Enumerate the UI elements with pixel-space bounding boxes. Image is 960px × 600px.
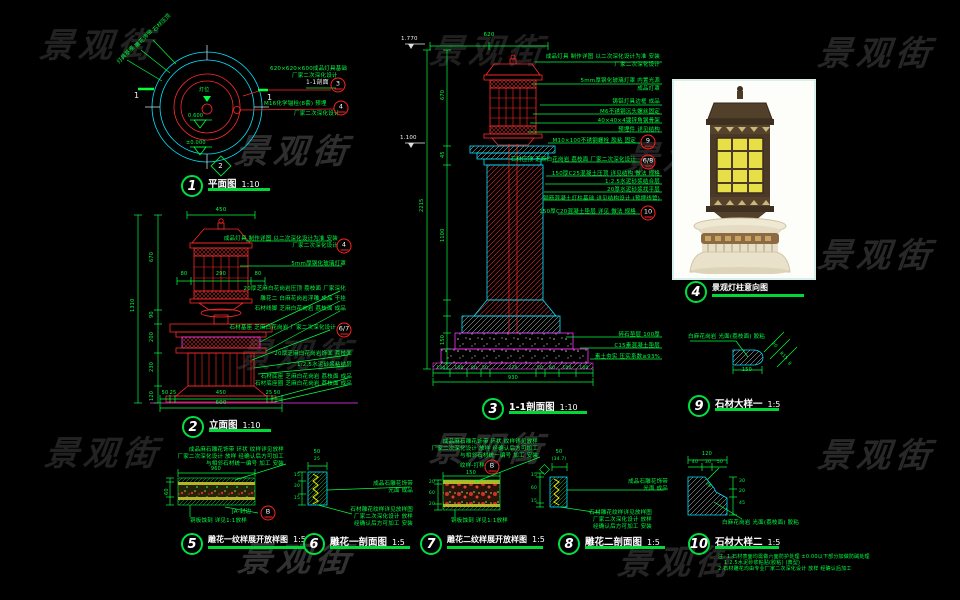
annotation-text: 光面 成品 bbox=[388, 488, 413, 494]
lamp-reference-photo bbox=[672, 79, 816, 280]
lamp-photo-render bbox=[674, 81, 810, 274]
annotation-text: 150 bbox=[466, 471, 476, 477]
annotation-text: 600 bbox=[215, 400, 226, 406]
annotation-text: 15 bbox=[531, 474, 537, 479]
annotation-text: 成品麻石雕花饰带 环状 纹样详见放样 bbox=[443, 439, 538, 445]
annotation-text: 290 bbox=[216, 272, 226, 278]
annotation-text: 灯位 bbox=[199, 88, 209, 94]
view-title-6: 6雕花一剖面图1:5 bbox=[303, 533, 325, 555]
annotation-text: 40 bbox=[692, 461, 698, 466]
view-title-label: 景观灯柱意向图 bbox=[712, 282, 768, 293]
annotation-text: 930 bbox=[508, 376, 518, 382]
title-underline bbox=[330, 546, 410, 549]
annotation-text: 120 bbox=[702, 452, 712, 458]
view-number-bubble: 1 bbox=[181, 175, 203, 197]
annotation-text: 60 bbox=[165, 488, 171, 495]
annotation-text: 50 bbox=[717, 461, 723, 466]
annotation-text: 45 bbox=[441, 151, 447, 158]
annotation-text: 石材压顶 芝麻白花岗岩 荔枝面 厂家二次深化设计 bbox=[510, 157, 636, 163]
annotation-text: JA-封边 bbox=[232, 509, 251, 515]
annotation-text: 光面 成品 bbox=[643, 486, 668, 492]
annotation-text: ±0.000 bbox=[186, 141, 206, 147]
annotation-text: 厂家二次深化设计 放样 经确认后方可加工 bbox=[178, 454, 285, 460]
annotation-text: 50 bbox=[556, 450, 563, 456]
annotation-text: 100 bbox=[579, 367, 588, 372]
annotation-text: 1.770 bbox=[401, 36, 418, 42]
annotation-text: 15 bbox=[294, 497, 300, 502]
annotation-text: 960 bbox=[211, 467, 221, 473]
view-title-8: 8雕花二剖面图1:5 bbox=[558, 533, 580, 555]
cad-linework bbox=[0, 0, 960, 600]
annotation-text: 成品麻石雕花饰带 环状 纹样详见放样 bbox=[189, 447, 284, 453]
annotation-text: 成品石雕花饰带 bbox=[628, 479, 668, 485]
annotation-text: 厂家二次深化设计 bbox=[294, 111, 340, 117]
annotation-text: 石材雕花纹样详见放样图 bbox=[350, 507, 413, 513]
annotation-text: 石材底座 芝麻白花岗岩 荔枝面 成品 bbox=[261, 374, 352, 380]
annotation-text: 20厚芝麻白花岗岩压顶 荔枝面 厂家深化 bbox=[244, 286, 347, 292]
annotation-text: 成品灯罩 bbox=[637, 86, 660, 92]
annotation-text: 石材基座 芝麻白花岗岩 厂家二次深化设计 bbox=[230, 325, 337, 331]
view-title-5: 5雕花一纹样展开放样图1:5 bbox=[181, 533, 203, 555]
detail9-stone bbox=[733, 350, 763, 365]
annotation-text: 100 bbox=[562, 367, 571, 372]
annotation-text: 60 bbox=[531, 487, 537, 492]
view-title-1: 1平面图1:10 bbox=[181, 175, 203, 197]
title-underline bbox=[447, 546, 543, 549]
annotation-text: 厂家二次深化设计 放样 经确认后方可加工 bbox=[432, 446, 539, 452]
view-title-7: 7雕花二纹样展开放样图1:5 bbox=[420, 533, 442, 555]
title-underline bbox=[509, 411, 587, 414]
annotation-text: 620 bbox=[483, 32, 494, 38]
callout-bubble: 6/7 bbox=[337, 323, 352, 338]
annotation-text: 80 bbox=[549, 367, 555, 372]
annotation-text: 200 bbox=[150, 332, 156, 342]
annotation-text: 铜板蚀刻 详见1:1放样 bbox=[451, 518, 508, 524]
annotation-text: 90 bbox=[150, 311, 156, 318]
annotation-text: 2215 bbox=[420, 198, 426, 212]
annotation-text: 150 bbox=[742, 368, 752, 374]
annotation-text: 50 bbox=[162, 391, 169, 397]
view-number-bubble: 9 bbox=[688, 395, 710, 417]
callout-bubble: B bbox=[485, 460, 500, 475]
annotation-text: 30 bbox=[705, 461, 711, 466]
view-title-label: 雕花一纹样展开放样图1:5 bbox=[208, 534, 306, 545]
annotation-text: 预埋件 详见结构 bbox=[618, 127, 660, 133]
annotation-text: M16化学锚栓(8套) 预埋 bbox=[264, 101, 327, 107]
annotation-text: 铸铝灯具边框 成品 bbox=[612, 99, 660, 105]
annotation-text: 1 bbox=[134, 92, 139, 101]
annotation-text: 230 bbox=[150, 362, 156, 372]
annotation-text: 25 bbox=[314, 458, 320, 463]
annotation-text: 铜板蚀刻 详见1:1放样 bbox=[190, 518, 247, 524]
annotation-text: 石材线脚 芝麻白花岗岩 荔枝面 成品 bbox=[255, 306, 346, 312]
annotation-text: 80 bbox=[255, 272, 262, 278]
view-number-bubble: 10 bbox=[688, 533, 710, 555]
annotation-text: C15素混凝土垫层 bbox=[614, 343, 660, 349]
title-underline bbox=[585, 546, 665, 549]
annotation-text: 1 bbox=[267, 94, 272, 103]
annotation-text: 1-1剖面 bbox=[306, 80, 329, 87]
annotation-text: 25 bbox=[266, 391, 273, 397]
annotation-text: 150厚C20混凝土垫层 详见 做法 规格 bbox=[539, 209, 636, 215]
annotation-text: 20 bbox=[739, 490, 745, 495]
annotation-text: 纹样-打样 bbox=[460, 463, 485, 469]
annotation-text: 80 bbox=[471, 367, 477, 372]
annotation-text: 150 bbox=[441, 335, 447, 345]
title-underline bbox=[208, 188, 270, 191]
annotation-text: 石材底座圈 芝麻白花岗岩 荔枝面 成品 bbox=[255, 381, 352, 387]
annotation-text: 经确认后方可加工 安装 bbox=[354, 521, 413, 527]
view-number-bubble: 2 bbox=[182, 416, 204, 438]
annotation-text: 30 bbox=[294, 485, 300, 490]
view-number-bubble: 4 bbox=[685, 281, 707, 303]
annotation-text: (34.7) bbox=[552, 458, 567, 463]
annotation-text: 150厚C25混凝土压顶 详见结构 做法 规格 bbox=[552, 171, 660, 177]
detail6-profile bbox=[308, 472, 327, 505]
annotation-text: 60 bbox=[429, 492, 435, 497]
callout-bubble: 4 bbox=[337, 239, 352, 254]
view-title-3: 31-1剖面图1:10 bbox=[482, 398, 504, 420]
annotation-text: 雕花二 白麻花岗岩浮雕 成品 干挂 bbox=[260, 296, 346, 302]
annotation-text: 1:2.5水泥砂浆粘结层 bbox=[297, 362, 352, 368]
view-number-bubble: 3 bbox=[482, 398, 504, 420]
annotation-text: 白麻花岗岩 光面(荔枝面) 胶粘 bbox=[722, 520, 799, 526]
annotation-text: 450 bbox=[216, 391, 226, 397]
view-number-bubble: 5 bbox=[181, 533, 203, 555]
title-underline bbox=[715, 546, 779, 549]
annotation-text: 100 bbox=[436, 367, 445, 372]
annotation-text: 碎石垫层 100厚 bbox=[618, 332, 660, 338]
annotation-text: 50 bbox=[482, 367, 488, 372]
annotation-text: 厂家二次深化设计 放样 bbox=[354, 514, 413, 520]
annotation-text: 成品石雕花饰带 bbox=[373, 481, 413, 487]
annotation-text: 0.600 bbox=[188, 114, 203, 120]
annotation-text: 素土夯实 压实系数≥93% bbox=[595, 354, 660, 360]
title-underline bbox=[712, 294, 804, 297]
annotation-text: 620×620×600成品灯具基础 bbox=[270, 66, 347, 72]
annotation-text: 石材雕花纹样详见放样图 bbox=[589, 510, 652, 516]
callout-bubble: 9 bbox=[641, 135, 656, 150]
annotation-text: 5mm厚钢化玻璃灯罩 内置光源 bbox=[581, 78, 660, 84]
view-title-2: 2立面图1:10 bbox=[182, 416, 204, 438]
annotation-text: 20厚芝麻白花岗岩饰面 荔枝面 bbox=[274, 351, 352, 357]
view-title-4: 4景观灯柱意向图 bbox=[685, 281, 707, 303]
annotation-text: 厂家二次深化设计 bbox=[614, 62, 660, 68]
view-title-10: 10石材大样二1:5 bbox=[688, 533, 710, 555]
view-number-bubble: 6 bbox=[303, 533, 325, 555]
annotation-text: 1:2.5水泥砂浆结合层 bbox=[605, 179, 660, 185]
callout-bubble: 4 bbox=[334, 101, 349, 116]
annotation-text: 100 bbox=[454, 367, 463, 372]
detail5-band bbox=[178, 478, 255, 505]
annotation-text: 670 bbox=[441, 90, 447, 100]
view-scale: 1:5 bbox=[532, 535, 545, 544]
annotation-text: 670 bbox=[150, 252, 156, 262]
section-view bbox=[408, 44, 593, 369]
annotation-text: 钢筋混凝土灯柱基础 详见结构设计 (预埋线管) bbox=[543, 196, 660, 202]
callout-bubble: B bbox=[261, 506, 276, 521]
title-underline bbox=[715, 408, 779, 411]
detail7-band bbox=[443, 480, 500, 510]
annotation-text: 厂家二次深化设计 放样 bbox=[593, 517, 652, 523]
annotation-text: 5mm厚钢化玻璃灯罩 bbox=[291, 261, 346, 267]
annotation-text: 与相邻石材统一编号 加工 安装 bbox=[460, 453, 538, 459]
title-underline bbox=[209, 429, 271, 432]
annotation-text: 50 bbox=[537, 367, 543, 372]
detail8-profile bbox=[540, 465, 567, 507]
annotation-text: 成品灯具 制作详图 以二次深化设计为准 安装 bbox=[546, 54, 660, 60]
annotation-text: 20 bbox=[429, 503, 435, 508]
view-number-bubble: 8 bbox=[558, 533, 580, 555]
view-title-label: 雕花二纹样展开放样图1:5 bbox=[447, 534, 545, 545]
annotation-text: 成品灯具 制作详图 以二次深化设计为准 安装 bbox=[224, 236, 338, 242]
annotation-text: 15 bbox=[294, 474, 300, 479]
callout-bubble: 3 bbox=[331, 78, 346, 93]
annotation-text: M10×100不锈钢螺栓 胶粘 固定 bbox=[553, 138, 636, 144]
annotation-text: 25 bbox=[170, 391, 177, 397]
annotation-text: 40×40×4镀锌角钢骨架 bbox=[598, 118, 660, 124]
annotation-text: 15 bbox=[531, 500, 537, 505]
annotation-text: 50 bbox=[314, 450, 321, 456]
cad-sheet: 景观街景观街景观街景观街景观街景观街景观街景观街景观街景观街景观街景观街 bbox=[0, 0, 960, 600]
annotation-text: 450 bbox=[215, 207, 226, 213]
annotation-text: M6不锈钢沉头螺丝固定 bbox=[600, 109, 660, 115]
annotation-text: 80 bbox=[181, 272, 188, 278]
view-number-bubble: 7 bbox=[420, 533, 442, 555]
annotation-text: 20厚水泥砂浆找平层 bbox=[607, 187, 660, 193]
annotation-text: 30 bbox=[739, 480, 745, 485]
annotation-text: 1.100 bbox=[400, 135, 417, 141]
annotation-text: 50 bbox=[274, 391, 281, 397]
title-underline bbox=[208, 546, 304, 549]
plan-view bbox=[152, 52, 262, 162]
annotation-text: 1100 bbox=[441, 228, 447, 242]
annotation-text: 120 bbox=[150, 391, 156, 401]
callout-bubble: 10 bbox=[641, 206, 656, 221]
annotation-text: 270 bbox=[508, 367, 517, 372]
annotation-text: 20 bbox=[429, 481, 435, 486]
view-title-9: 9石材大样一1:5 bbox=[688, 395, 710, 417]
callout-bubble: 6/8 bbox=[641, 155, 656, 170]
annotation-text: 经确认后方可加工 安装 bbox=[593, 524, 652, 530]
annotation-text: 1310 bbox=[131, 298, 137, 312]
annotation-text: 2.石材雕花均由专业厂家二次深化设计 放样 经确认后加工 bbox=[718, 567, 852, 573]
annotation-text: 厂家二次深化设计 bbox=[292, 243, 338, 249]
annotation-text: 白麻花岗岩 光面(荔枝面) 胶粘 bbox=[688, 334, 765, 340]
annotation-text: 45 bbox=[739, 502, 745, 507]
